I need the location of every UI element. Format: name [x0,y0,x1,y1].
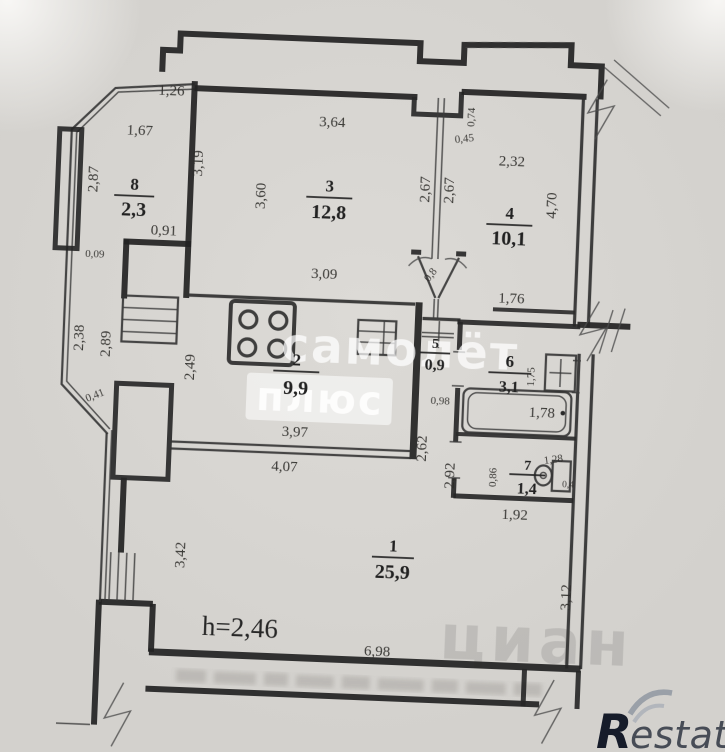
dim-1-26: 1,26 [158,83,185,100]
svg-text:4: 4 [505,204,515,223]
plus-watermark: плюс [255,374,384,425]
interior-walls [169,81,592,503]
logo-swoosh-large [630,692,672,714]
floor-plan-scan: циан [0,0,725,752]
windows [46,129,185,480]
dim-2-89: 2,89 [98,330,115,357]
svg-text:2,3: 2,3 [121,198,147,221]
dim-2-49: 2,49 [182,354,199,381]
dim-3-97: 3,97 [281,424,308,441]
dim-1-28: 1,28 [543,453,564,468]
dim-1-76: 1,76 [498,290,525,307]
restate-logo: R estate [596,692,725,752]
dim-2-67-b: 2,67 [441,177,458,204]
room-label-1: 1 25,9 [371,536,415,585]
dim-1-92: 1,92 [501,507,528,524]
svg-text:10,1: 10,1 [491,227,527,250]
dim-3-60: 3,60 [253,182,270,209]
sink-icon [545,354,576,391]
dim-0-41: 0,41 [84,387,106,405]
dim-3-19: 3,19 [190,150,207,177]
svg-text:2: 2 [292,350,301,369]
pier-block [113,383,172,479]
room-label-7: 7 1,4 [508,458,546,498]
drain-dot [560,411,565,416]
dim-3-12: 3,12 [558,584,575,611]
dim-2-92: 2,92 [442,462,459,489]
logo-text: estate [630,713,725,752]
dim-0-45: 0,45 [454,132,475,146]
svg-text:8: 8 [130,175,139,194]
svg-text:9,9: 9,9 [283,377,309,400]
svg-text:0,9: 0,9 [424,357,445,375]
dim-4-70: 4,70 [544,192,561,219]
svg-text:7: 7 [524,459,532,474]
svg-text:3,1: 3,1 [498,379,519,397]
svg-text:3: 3 [325,176,334,195]
dim-0-4: 0,4 [562,480,575,490]
dim-3-64: 3,64 [319,114,346,131]
svg-text:1,4: 1,4 [516,480,537,498]
dim-0-09: 0,09 [85,248,105,261]
dim-2-67-a: 2,67 [417,176,434,203]
dim-2-87: 2,87 [85,165,102,192]
floor-plan-drawing: циан [0,0,725,752]
dim-1-75: 1,75 [525,367,538,387]
room-label-3: 3 12,8 [305,176,353,225]
svg-text:12,8: 12,8 [311,201,347,224]
dim-0-86: 0,86 [487,467,500,487]
svg-text:5: 5 [432,337,440,352]
logo-letter-r: R [596,705,632,752]
room-label-8: 8 2,3 [113,174,155,222]
ceiling-height-label: h=2,46 [201,611,278,644]
dim-2-62: 2,62 [414,435,431,462]
dim-3-09: 3,09 [311,266,338,283]
dim-0-98: 0,98 [430,395,450,408]
room-label-4: 4 10,1 [485,203,533,251]
svg-text:1: 1 [389,536,398,555]
dim-2-38: 2,38 [71,324,88,351]
dim-6-98: 6,98 [364,643,391,660]
dim-3-42: 3,42 [172,542,189,569]
dim-1-67: 1,67 [126,122,153,139]
svg-text:6: 6 [505,352,514,371]
svg-text:25,9: 25,9 [374,561,410,584]
dim-2-32: 2,32 [498,153,525,170]
dim-0-8: 0,8 [422,266,440,285]
dim-0-74: 0,74 [465,107,478,127]
dim-4-07: 4,07 [271,459,298,476]
dim-1-78: 1,78 [528,405,555,422]
dim-0-91: 0,91 [150,222,177,239]
